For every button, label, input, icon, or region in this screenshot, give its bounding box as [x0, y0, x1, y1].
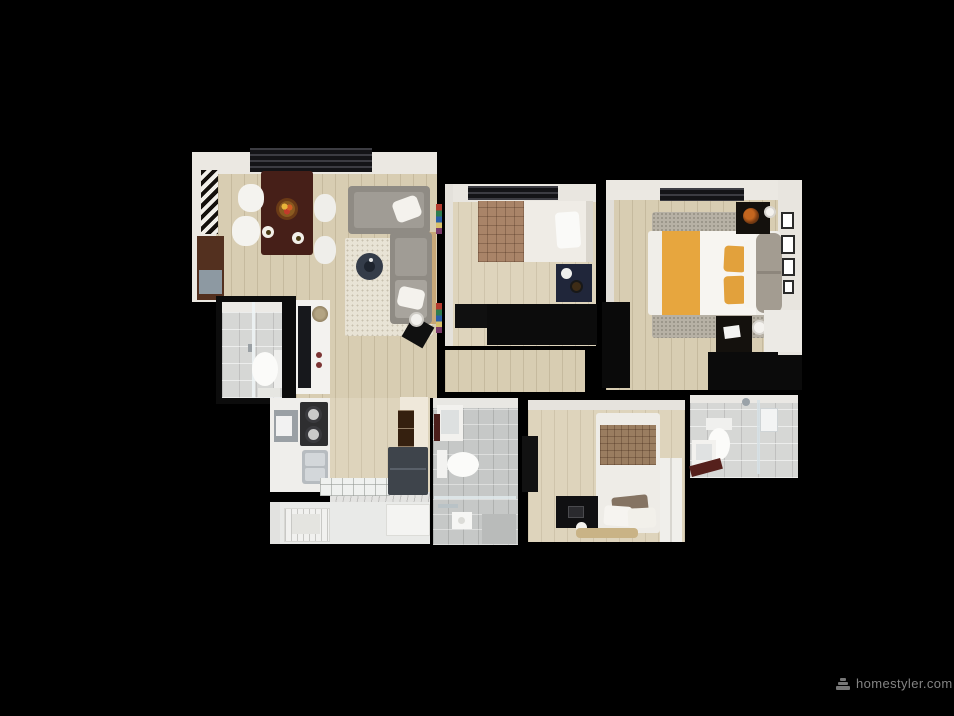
sideboard-front — [199, 270, 222, 294]
wall-balcony-left — [270, 502, 280, 544]
plate-2-food — [296, 236, 301, 241]
burner-2 — [305, 426, 322, 443]
nightstand-2-clock — [570, 280, 583, 293]
dining-chair-2 — [232, 216, 260, 246]
shelf-books-2 — [436, 303, 442, 333]
toilet-2-bowl — [447, 452, 479, 477]
side-table-lamp — [409, 312, 424, 327]
fridge-line — [390, 468, 426, 470]
picture-frame-3 — [782, 258, 795, 276]
floor-clutter — [576, 528, 638, 538]
tv-screen — [298, 306, 311, 388]
bathroom-1-mat — [258, 388, 280, 397]
wardrobe-2 — [487, 304, 597, 345]
bed-3-headboard — [600, 425, 656, 465]
balcony-counter — [386, 504, 430, 536]
wardrobe-3 — [522, 436, 538, 492]
closet-3-line — [670, 458, 672, 542]
bed-2-headboard — [586, 201, 593, 262]
kitchen-tiles — [320, 478, 390, 496]
toilet-2-tank — [437, 450, 447, 478]
picture-frame-2 — [781, 235, 795, 254]
ac-vent-bedroom2 — [468, 186, 558, 200]
shower-glass-1-handle — [248, 344, 252, 352]
soap — [458, 517, 465, 524]
shower-step — [482, 514, 516, 544]
wall-art — [201, 170, 218, 234]
wall-master-left — [606, 200, 614, 302]
picture-frame-1 — [781, 212, 794, 229]
tv-knob-2 — [316, 362, 322, 368]
dining-chair-4 — [314, 236, 336, 264]
burner-1 — [305, 406, 322, 423]
headboard-split — [757, 271, 781, 274]
bed-2-blanket — [478, 201, 524, 262]
shower-unit-3 — [760, 408, 778, 432]
watermark-text: homestyler.com — [856, 676, 953, 691]
fruit-bowl — [279, 201, 295, 217]
wall-bedroom3-top — [528, 400, 685, 410]
bed-master-throw — [662, 231, 700, 315]
floor-corridor — [445, 350, 585, 392]
balcony-sink — [292, 514, 320, 534]
wardrobe-2-side — [455, 304, 487, 328]
floorplan-render: homestyler.com — [0, 0, 954, 716]
plate-1-food — [266, 230, 271, 235]
coffee-table-item — [369, 258, 373, 262]
bed-2-pillow — [555, 211, 581, 249]
ac-vent-master — [660, 188, 744, 201]
master-floor-shadow — [708, 352, 802, 390]
shower-glass-2 — [434, 496, 516, 499]
wall-bedroom2-left — [445, 184, 453, 346]
nightstand-plant — [743, 208, 759, 224]
ac-vent-living — [250, 148, 372, 172]
sink-3-basin — [696, 444, 712, 460]
fridge — [388, 447, 428, 495]
pantry-shelves — [398, 410, 414, 448]
dresser-master — [764, 310, 802, 352]
sink-2-cabinet — [434, 414, 440, 441]
nightstand-2-lamp — [561, 268, 572, 279]
picture-frame-4 — [783, 280, 794, 294]
shower-pipe-2 — [438, 504, 458, 508]
sink-2-basin — [441, 410, 459, 434]
dining-chair-3 — [314, 194, 336, 222]
tv-knob-1 — [316, 352, 322, 358]
coffee-table-center — [364, 261, 375, 272]
tv-plant — [312, 306, 328, 322]
desk-3-item — [568, 506, 584, 518]
shower-glass-1 — [252, 302, 255, 398]
watermark: homestyler.com — [836, 676, 953, 691]
oven-door — [276, 416, 292, 436]
toilet-1-bowl — [252, 352, 278, 386]
shower-head-3 — [742, 398, 750, 406]
wall-lamp-1 — [764, 206, 776, 218]
wardrobe-master — [602, 302, 630, 388]
bed-3-pillow-2 — [627, 507, 656, 528]
sofa-cushion-1 — [395, 238, 427, 276]
nightstand-book — [723, 325, 741, 339]
sink-basin-1 — [305, 453, 325, 466]
shelf-books-1 — [436, 204, 442, 234]
dining-chair-1 — [238, 184, 264, 212]
homestyler-logo-icon — [836, 677, 850, 691]
